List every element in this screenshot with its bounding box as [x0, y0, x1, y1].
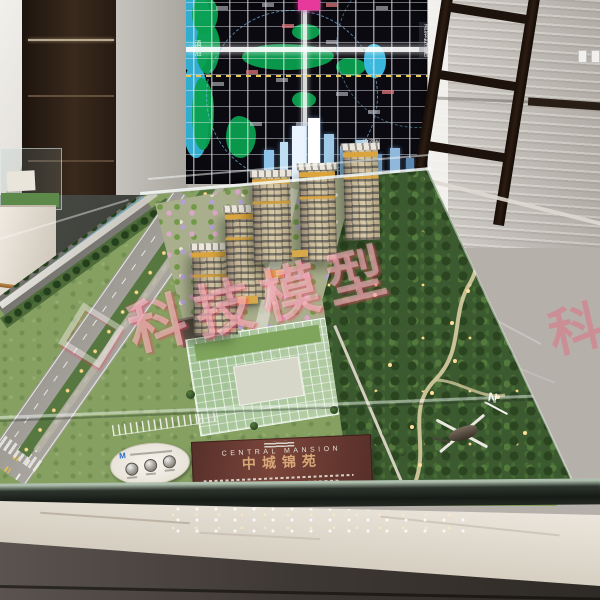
showroom-photo: 滇池 高铁经济圈 经济圈: [0, 0, 600, 600]
wood-groove: [28, 39, 114, 41]
map-label: [336, 92, 348, 96]
button-label-line: [146, 473, 156, 476]
tree: [250, 422, 258, 430]
map-label: [326, 40, 338, 44]
side-display-case: [0, 148, 62, 210]
inner-courtyard: [233, 356, 305, 406]
map-label: [382, 90, 394, 94]
podium-awning: [266, 270, 284, 279]
light-reflections: [170, 503, 470, 535]
light-switch: [591, 50, 600, 63]
trellis-rung: [438, 70, 518, 91]
button-label-line: [127, 476, 137, 479]
map-label: [212, 82, 224, 86]
map-label: [282, 24, 294, 28]
button-label-line: [165, 469, 175, 472]
light-switch: [578, 50, 587, 63]
residential-tower: [299, 168, 337, 263]
map-label: [246, 70, 258, 74]
model-button: [125, 462, 139, 476]
tree: [398, 448, 406, 456]
tree: [382, 428, 391, 437]
trellis-rung: [427, 141, 507, 162]
helicopter-model: [430, 408, 494, 458]
model-button: [144, 458, 158, 472]
tower-roof: [250, 169, 292, 177]
tower-band: [300, 196, 336, 200]
helicopter-tail: [432, 437, 450, 443]
podium-awning: [238, 295, 258, 304]
map-label: [262, 3, 274, 7]
lake-label: 滇池: [192, 40, 202, 58]
map-label: [216, 6, 228, 10]
residential-tower: [252, 175, 292, 263]
model-button: [162, 455, 176, 469]
tree: [186, 390, 195, 399]
trellis-rail: [493, 0, 541, 226]
podium-awning: [292, 250, 308, 258]
marble-wall-strip: [116, 0, 188, 214]
tower-band: [253, 201, 291, 205]
trellis-rung: [449, 3, 529, 24]
tower-roof: [341, 143, 380, 151]
wood-groove: [28, 95, 114, 97]
map-label: [276, 78, 288, 82]
map-label: [376, 6, 388, 10]
map-label: [326, 3, 338, 7]
marble-vein: [40, 512, 190, 524]
case-model: [6, 170, 35, 191]
tower-crown: [343, 152, 378, 158]
project-highlight-marker: [298, 0, 320, 10]
plate-logo: M: [119, 451, 126, 461]
